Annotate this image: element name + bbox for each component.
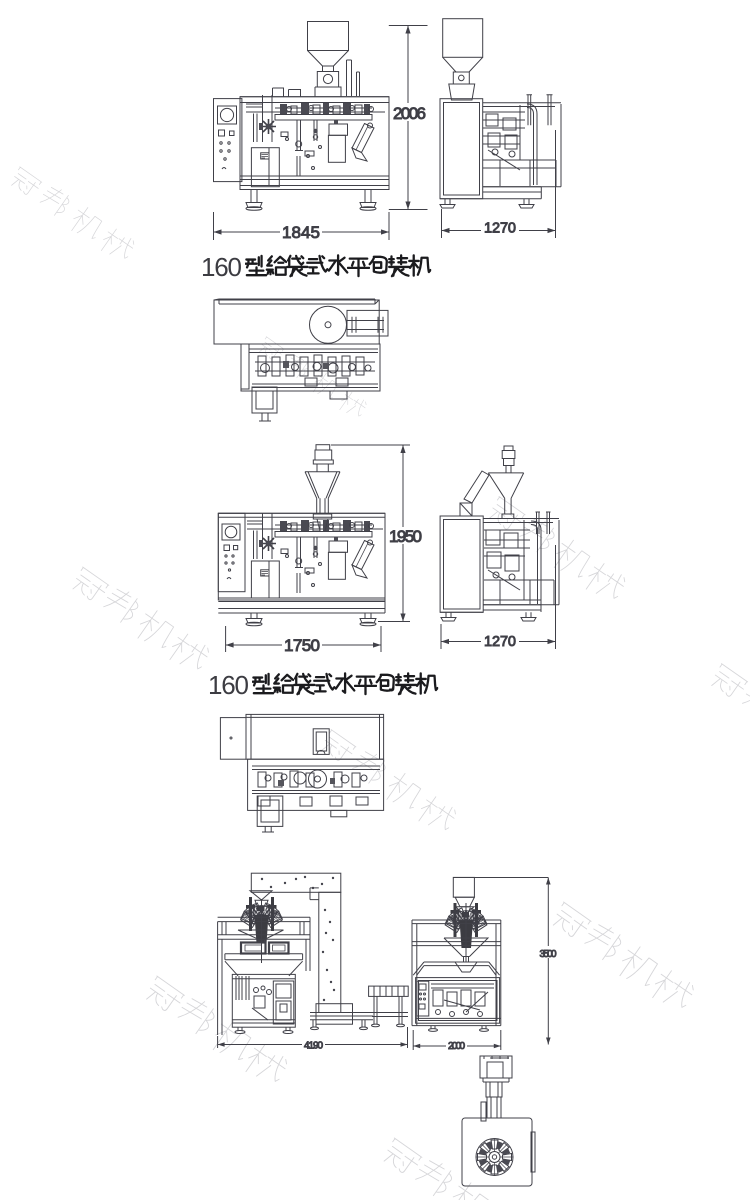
- svg-text:2006: 2006: [393, 104, 426, 123]
- svg-text:3500: 3500: [540, 949, 557, 960]
- svg-text:4190: 4190: [304, 1041, 323, 1052]
- svg-text:2000: 2000: [448, 1041, 465, 1052]
- svg-text:1270: 1270: [484, 221, 516, 237]
- svg-text:160: 160: [208, 670, 249, 700]
- svg-text:1270: 1270: [484, 634, 516, 650]
- svg-text:1950: 1950: [389, 527, 422, 546]
- svg-text:1845: 1845: [282, 223, 320, 242]
- svg-text:160: 160: [201, 252, 242, 282]
- svg-text:1750: 1750: [284, 636, 320, 655]
